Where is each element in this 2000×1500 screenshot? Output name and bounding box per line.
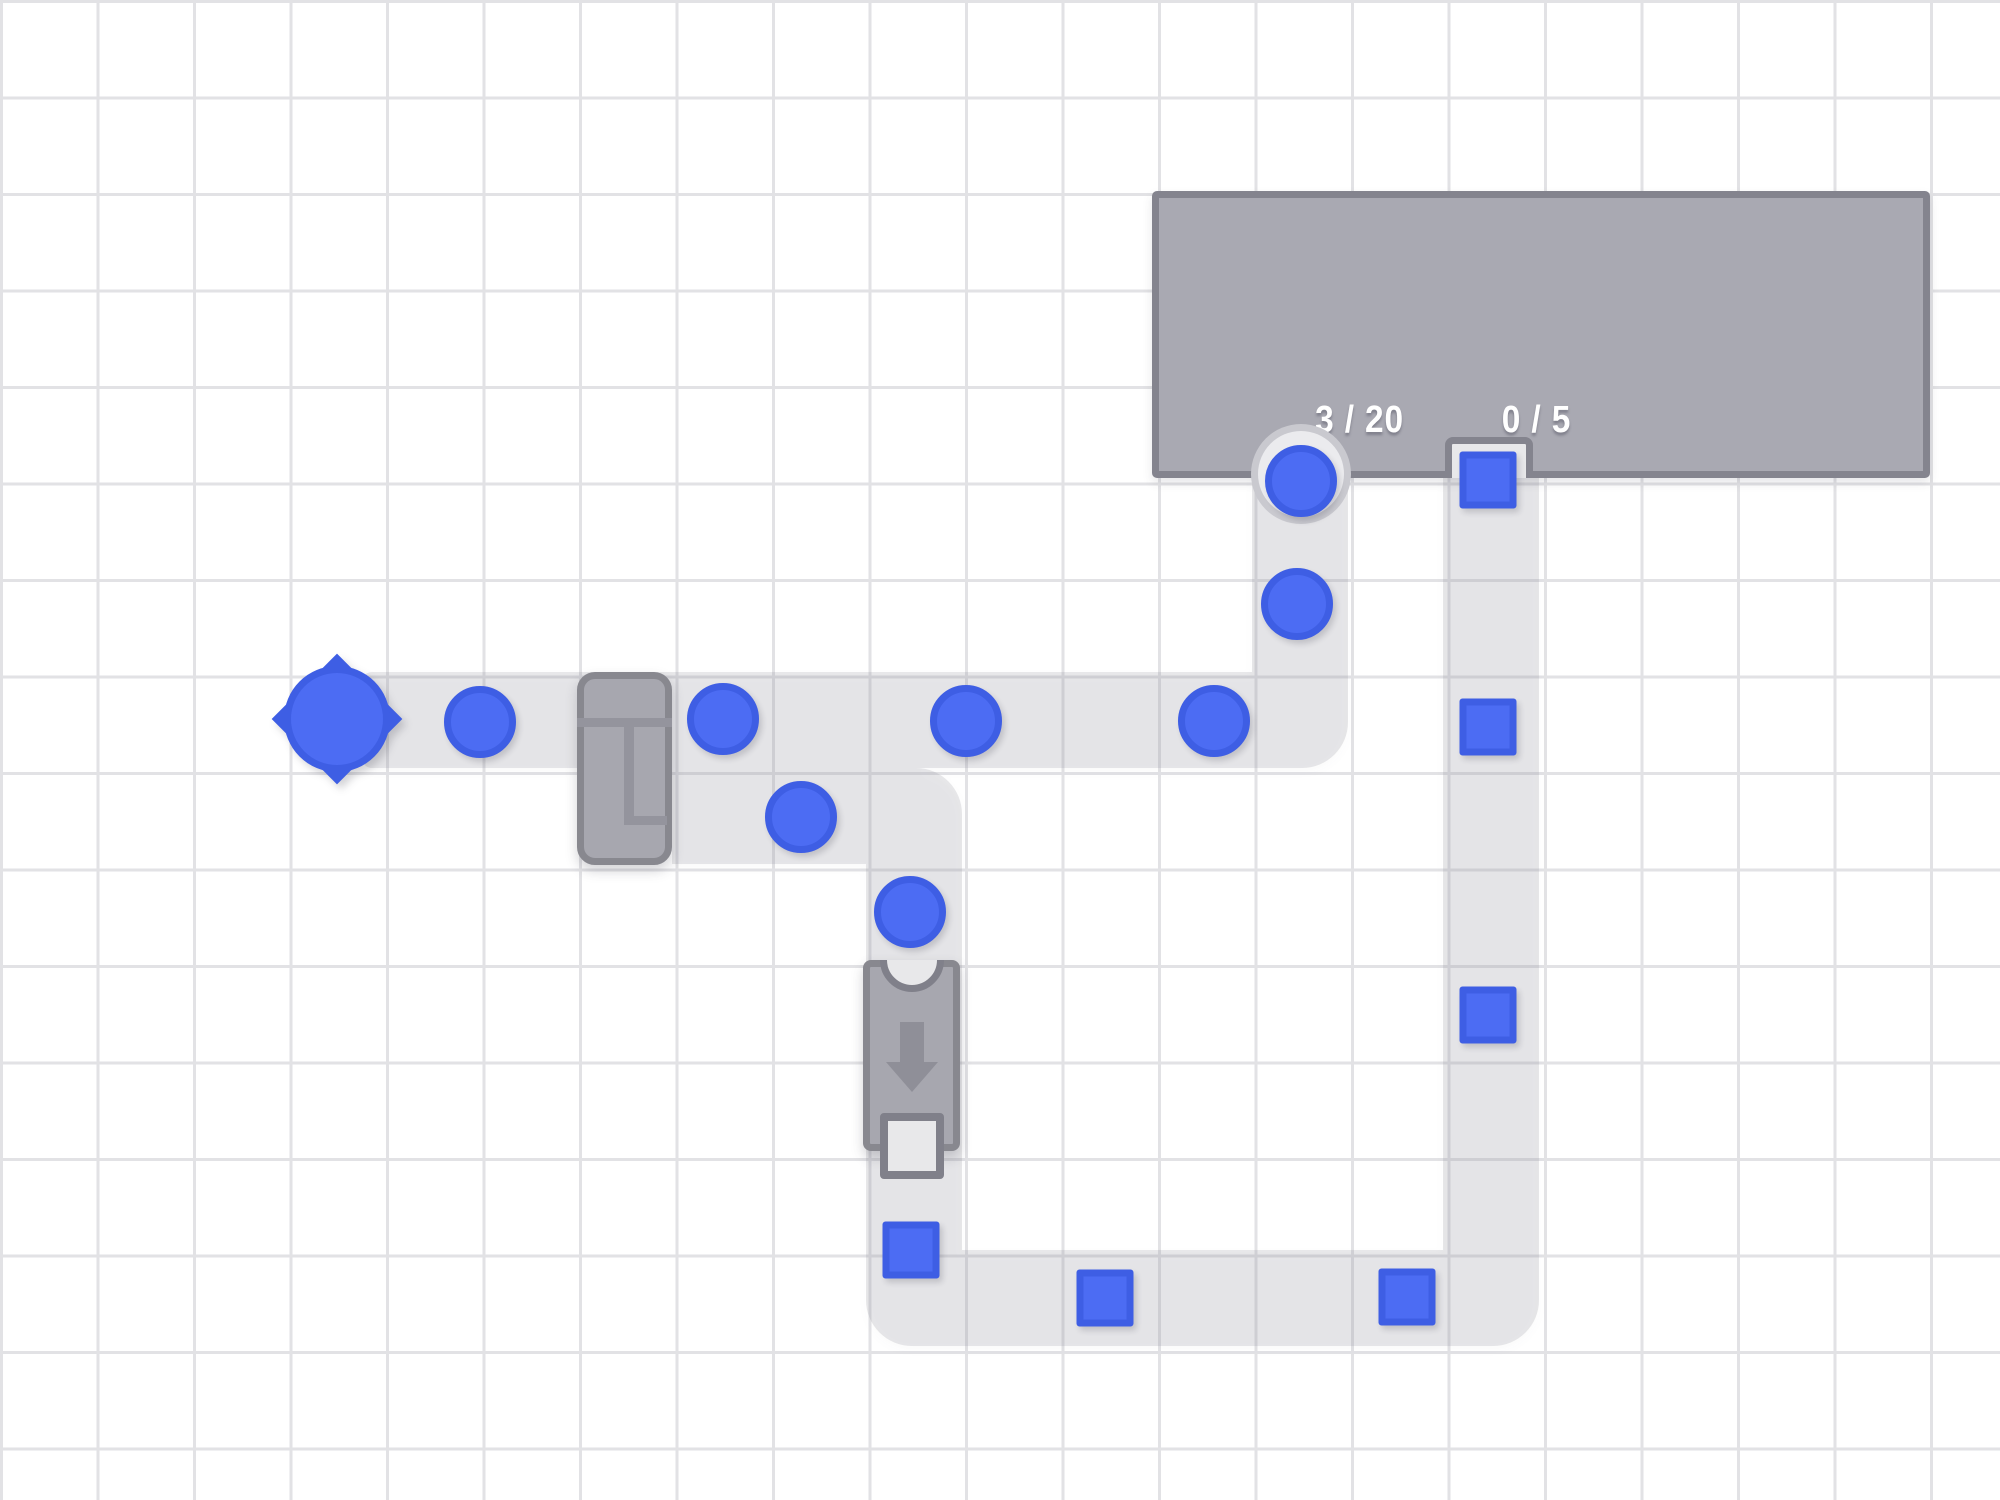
shape-item-square[interactable] (1077, 1270, 1134, 1327)
shape-item-square[interactable] (1460, 452, 1517, 509)
shape-item-square[interactable] (1460, 987, 1517, 1044)
shape-item-circle[interactable] (444, 686, 516, 758)
items-layer (0, 0, 2000, 1500)
factory-game-canvas[interactable]: 3 / 20 0 / 5 (0, 0, 2000, 1500)
shape-item-square[interactable] (883, 1222, 940, 1279)
shape-item-circle[interactable] (930, 685, 1002, 757)
shape-item-circle[interactable] (1261, 568, 1333, 640)
shape-item-circle[interactable] (1265, 445, 1337, 517)
shape-item-circle[interactable] (687, 683, 759, 755)
shape-item-circle[interactable] (765, 781, 837, 853)
shape-item-square[interactable] (1460, 699, 1517, 756)
shape-item-square[interactable] (1379, 1269, 1436, 1326)
shape-item-circle[interactable] (874, 876, 946, 948)
shape-item-circle[interactable] (1178, 685, 1250, 757)
